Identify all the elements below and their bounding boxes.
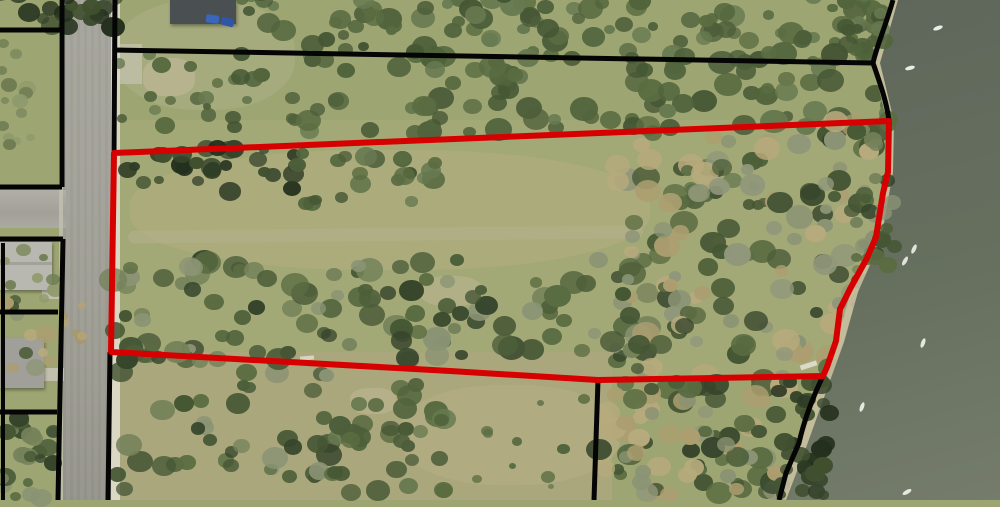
tree-canopy-blob (298, 197, 314, 210)
tree-canopy-blob (368, 398, 384, 412)
tree-canopy-blob (633, 411, 648, 424)
tree-canopy-blob (35, 454, 46, 464)
tree-canopy-blob (488, 55, 504, 68)
tree-canopy-blob (693, 425, 713, 442)
tree-canopy-blob (351, 266, 364, 277)
tree-canopy-blob (530, 16, 544, 28)
tree-canopy-blob (176, 161, 193, 176)
tree-canopy-blob (859, 143, 878, 159)
tree-canopy-blob (391, 331, 413, 349)
tree-canopy-blob (719, 427, 741, 445)
tree-canopy-blob (342, 338, 357, 351)
tree-canopy-blob (367, 295, 380, 306)
tree-canopy-blob (184, 259, 204, 276)
tree-canopy-blob (153, 269, 174, 287)
tree-canopy-blob (196, 420, 214, 435)
tree-canopy-blob (626, 0, 647, 16)
tree-canopy-blob (351, 397, 368, 411)
tree-canopy-blob (307, 435, 328, 453)
tree-canopy-blob (282, 300, 302, 317)
tree-canopy-blob (862, 0, 882, 17)
boat (919, 338, 926, 349)
tree-canopy-blob (684, 182, 698, 194)
tree-canopy-blob (175, 277, 189, 289)
tree-canopy-blob (282, 470, 297, 483)
tree-canopy-blob (434, 414, 449, 427)
tree-canopy-blob (401, 440, 415, 452)
tree-canopy-blob (302, 284, 317, 297)
tree-canopy-blob (425, 61, 445, 78)
tree-canopy-blob (663, 279, 679, 292)
tree-canopy-blob (820, 204, 832, 214)
tree-canopy-blob (739, 417, 763, 437)
tree-canopy-blob (632, 166, 659, 189)
tree-canopy-blob (468, 302, 491, 321)
tree-canopy-blob (47, 427, 59, 437)
tree-canopy-blob (799, 393, 815, 407)
parcel-upper-grass (130, 150, 650, 270)
tree-canopy-blob (366, 480, 390, 500)
tree-canopy-blob (689, 186, 707, 201)
tree-canopy-blob (838, 36, 858, 53)
tree-canopy-blob (787, 134, 811, 154)
tree-canopy-blob (880, 98, 897, 112)
tree-canopy-blob (10, 308, 24, 320)
tree-canopy-blob (234, 310, 251, 325)
tree-canopy-blob (625, 324, 652, 347)
tree-canopy-blob (704, 22, 721, 37)
tree-canopy-blob (249, 152, 267, 167)
tree-canopy-blob (253, 68, 269, 82)
tree-canopy-blob (498, 336, 526, 360)
tree-canopy-blob (523, 108, 549, 130)
tree-canopy-blob (805, 225, 826, 243)
tree-canopy-blob (806, 32, 819, 43)
tree-canopy-blob (498, 80, 519, 98)
tree-canopy-blob (465, 6, 486, 24)
tree-canopy-blob (877, 5, 887, 13)
tree-canopy-blob (758, 484, 776, 499)
tree-canopy-blob (850, 17, 867, 32)
tree-canopy-blob (520, 9, 542, 27)
tree-canopy-blob (672, 196, 689, 211)
tree-canopy-blob (184, 282, 201, 296)
tree-canopy-blob (383, 315, 409, 337)
tree-canopy-blob (749, 240, 776, 263)
tree-canopy-blob (627, 249, 640, 260)
tree-canopy-blob (610, 419, 637, 442)
tree-canopy-blob (843, 0, 866, 20)
tree-canopy-blob (607, 172, 629, 190)
tree-canopy-blob (613, 316, 639, 338)
tree-canopy-blob (392, 260, 408, 274)
tree-canopy-blob (876, 352, 891, 365)
tree-canopy-blob (338, 30, 349, 39)
water-body (786, 0, 1000, 500)
tree-canopy-blob (622, 274, 634, 284)
tree-canopy-blob (710, 166, 724, 178)
tree-canopy-blob (329, 416, 351, 435)
tree-canopy-blob (317, 327, 331, 339)
tree-canopy-blob (859, 329, 882, 349)
tree-canopy-blob (604, 25, 615, 35)
tree-canopy-blob (152, 57, 171, 73)
tree-canopy-blob (43, 355, 56, 366)
tree-canopy-blob (701, 437, 725, 457)
tree-canopy-blob (13, 447, 32, 463)
tree-canopy-blob (432, 111, 448, 125)
tree-canopy-blob (223, 459, 238, 472)
tree-canopy-blob (165, 96, 176, 105)
tree-canopy-blob (698, 258, 719, 275)
tree-canopy-blob (425, 119, 440, 132)
tree-canopy-blob (608, 354, 625, 369)
tree-canopy-blob (803, 101, 828, 122)
tree-canopy-blob (228, 74, 241, 85)
tree-canopy-blob (758, 198, 769, 208)
boats (858, 24, 943, 496)
tree-canopy-blob (480, 0, 504, 9)
tree-canopy-blob (686, 307, 706, 324)
tree-canopy-blob (679, 393, 697, 408)
tree-canopy-blob (775, 28, 787, 38)
tree-canopy-blob (638, 79, 664, 102)
tree-canopy-blob (340, 424, 364, 444)
tree-canopy-blob (778, 72, 794, 86)
tree-canopy-blob (119, 268, 140, 286)
tree-canopy-blob (767, 465, 787, 482)
tree-canopy-blob (30, 489, 51, 507)
tree-canopy-blob (284, 439, 303, 455)
tree-canopy-blob (258, 167, 271, 178)
tree-canopy-blob (317, 434, 340, 453)
tree-canopy-blob (481, 30, 501, 47)
tree-canopy-blob (572, 13, 585, 24)
tree-canopy-blob (359, 304, 385, 326)
tree-canopy-blob (685, 160, 701, 173)
tree-canopy-blob (329, 17, 342, 28)
tree-canopy-blob (166, 457, 184, 472)
tree-canopy-blob (498, 77, 516, 93)
tree-canopy-blob (328, 92, 349, 110)
tree-canopy-blob (865, 85, 885, 102)
tree-canopy-blob (398, 422, 414, 436)
tree-canopy-blob (800, 74, 821, 92)
tree-canopy-blob (848, 193, 871, 213)
tree-canopy-blob (874, 8, 887, 19)
tree-canopy-blob (450, 254, 464, 266)
tree-canopy-blob (149, 105, 161, 115)
tree-canopy-blob (18, 81, 36, 96)
tree-canopy-blob (231, 262, 246, 275)
tree-canopy-blob (26, 134, 35, 141)
tree-canopy-blob (37, 13, 49, 23)
tree-canopy-blob (557, 444, 569, 454)
tree-canopy-blob (711, 278, 734, 298)
tree-canopy-blob (356, 258, 384, 282)
tree-canopy-blob (736, 336, 754, 351)
tree-canopy-blob (615, 287, 631, 301)
tree-canopy-blob (449, 0, 472, 7)
tree-canopy-blob (767, 249, 791, 269)
tree-canopy-blob (436, 336, 450, 348)
tree-canopy-blob (813, 457, 833, 474)
tree-canopy-blob (300, 123, 318, 139)
tree-canopy-blob (810, 307, 823, 318)
tree-canopy-blob (408, 378, 425, 392)
tree-canopy-blob (7, 426, 18, 436)
tree-canopy-blob (863, 125, 879, 139)
tree-canopy-blob (720, 5, 745, 27)
tree-canopy-blob (155, 117, 175, 134)
tree-canopy-blob (624, 246, 638, 258)
tree-canopy-blob (3, 139, 16, 150)
tree-canopy-blob (403, 167, 417, 179)
tree-canopy-blob (380, 286, 396, 300)
tree-canopy-blob (635, 465, 651, 478)
tree-canopy-blob (0, 39, 9, 48)
tree-canopy-blob (394, 151, 410, 165)
tree-canopy-blob (0, 473, 9, 484)
tree-canopy-blob (364, 150, 385, 168)
tree-canopy-blob (739, 32, 759, 49)
tree-canopy-blob (751, 425, 767, 439)
tree-canopy-blob (185, 263, 210, 285)
sand-patch (143, 58, 195, 96)
tree-canopy-blob (675, 318, 694, 334)
tree-canopy-blob (417, 172, 432, 184)
tree-canopy-blob (444, 23, 462, 38)
tree-canopy-blob (1, 78, 17, 92)
tree-canopy-blob (605, 155, 630, 176)
tree-canopy-blob (797, 460, 816, 476)
tree-canopy-blob (665, 58, 684, 74)
tree-canopy-blob (611, 271, 624, 282)
tree-canopy-blob (206, 162, 219, 173)
parcel-ground (110, 120, 900, 380)
highlighted-parcel-boundary[interactable] (111, 121, 889, 380)
tree-canopy-blob (352, 167, 368, 180)
tree-canopy-blob (795, 484, 810, 497)
tree-canopy-blob (507, 68, 523, 81)
tree-canopy-blob (670, 211, 698, 235)
tree-canopy-blob (790, 447, 810, 464)
tree-canopy-blob (327, 466, 342, 479)
tree-canopy-blob (648, 22, 658, 31)
tree-canopy-blob (858, 185, 871, 196)
tree-canopy-blob (203, 103, 212, 110)
tree-canopy-blob (678, 467, 697, 483)
tree-canopy-blob (613, 295, 631, 311)
tree-canopy-blob (0, 66, 7, 75)
tree-canopy-blob (705, 130, 722, 144)
tree-canopy-blob (887, 240, 903, 253)
tree-canopy-blob (352, 415, 373, 433)
tree-canopy-blob (864, 132, 882, 148)
tree-canopy-blob (659, 193, 681, 212)
tree-canopy-blob (853, 139, 875, 158)
tree-canopy-blob (341, 484, 361, 501)
tree-canopy-blob (708, 51, 735, 74)
tree-canopy-blob (724, 243, 751, 266)
tree-canopy-blob (522, 302, 544, 320)
tree-canopy-blob (841, 24, 855, 36)
tree-canopy-blob (289, 158, 306, 173)
tree-canopy-blob (544, 285, 571, 308)
tree-canopy-blob (709, 178, 728, 194)
tree-canopy-blob (644, 383, 659, 396)
tree-canopy-blob (632, 27, 651, 43)
tree-canopy-blob (520, 339, 544, 359)
tree-canopy-blob (833, 162, 847, 174)
tree-canopy-blob (436, 484, 453, 498)
tree-canopy-blob (627, 445, 646, 461)
tree-canopy-blob (134, 308, 150, 321)
tree-canopy-blob (619, 451, 634, 463)
tree-canopy-blob (654, 235, 680, 257)
tree-canopy-blob (811, 473, 828, 487)
tree-canopy-blob (625, 72, 649, 92)
boat (905, 65, 916, 71)
tree-canopy-blob (851, 253, 862, 262)
tree-canopy-blob (23, 478, 33, 487)
tree-canopy-blob (680, 428, 700, 445)
tree-canopy-blob (237, 380, 250, 391)
tree-canopy-blob (412, 36, 437, 57)
tree-canopy-blob (776, 490, 786, 499)
shoreline-vegetation (0, 0, 1000, 500)
tree-canopy-blob (296, 110, 321, 131)
tree-canopy-blob (543, 49, 559, 62)
tree-canopy-blob (774, 477, 790, 490)
tree-canopy-blob (219, 182, 241, 200)
tree-canopy-blob (255, 0, 273, 8)
tree-canopy-blob (874, 33, 892, 49)
cross-street (0, 190, 66, 228)
tree-canopy-blob (680, 306, 697, 321)
shoreline-beach (786, 0, 898, 500)
parcel-lines-layer (0, 0, 1000, 500)
tree-canopy-blob (635, 399, 660, 421)
tree-canopy-blob (802, 453, 819, 467)
tree-canopy-blob (658, 82, 680, 101)
tree-canopy-blob (774, 433, 795, 451)
tree-canopy-blob (393, 398, 417, 419)
tree-canopy-blob (204, 294, 223, 310)
tree-canopy-blob (9, 410, 29, 427)
tree-canopy-blob (412, 96, 436, 116)
tree-canopy-blob (688, 292, 702, 304)
tree-canopy-blob (775, 82, 798, 102)
tree-canopy-blob (8, 0, 29, 3)
tree-canopy-blob (829, 266, 849, 283)
tree-canopy-blob (800, 183, 821, 201)
tree-canopy-blob (763, 480, 787, 500)
tree-canopy-blob (827, 4, 837, 13)
tree-canopy-blob (465, 290, 481, 304)
tree-canopy-blob (556, 314, 571, 327)
tree-canopy-blob (599, 417, 626, 440)
tree-canopy-blob (857, 297, 870, 308)
tree-canopy-blob (425, 405, 451, 427)
tree-canopy-blob (859, 135, 884, 157)
tree-canopy-blob (179, 257, 201, 276)
tree-canopy-blob (380, 425, 401, 443)
tree-canopy-blob (869, 173, 882, 184)
tree-canopy-blob (495, 0, 514, 3)
tree-canopy-blob (699, 15, 714, 27)
tree-canopy-blob (265, 168, 281, 182)
tree-canopy-blob (600, 111, 621, 129)
tree-canopy-blob (0, 301, 10, 315)
tree-canopy-blob (405, 310, 418, 321)
tree-canopy-blob (678, 154, 704, 176)
tree-canopy-blob (855, 21, 868, 32)
tree-canopy-blob (718, 439, 744, 461)
tree-canopy-blob (612, 464, 624, 474)
tree-canopy-blob (629, 0, 651, 10)
tree-canopy-blob (483, 429, 494, 438)
tree-canopy-blob (658, 282, 671, 293)
tree-canopy-blob (387, 57, 411, 77)
tree-canopy-blob (800, 408, 815, 421)
tree-canopy-blob (800, 464, 813, 475)
tree-canopy-blob (793, 33, 811, 48)
tree-canopy-blob (644, 96, 665, 114)
tree-canopy-blob (698, 426, 712, 438)
tree-canopy-blob (754, 137, 781, 160)
tree-canopy-blob (731, 334, 756, 356)
tree-canopy-blob (9, 295, 21, 305)
tree-canopy-blob (0, 297, 14, 309)
tree-canopy-blob (489, 63, 517, 86)
tree-canopy-blob (203, 163, 222, 179)
tree-canopy-blob (264, 464, 276, 475)
tree-canopy-blob (364, 9, 384, 26)
tree-canopy-blob (853, 341, 874, 359)
tree-canopy-blob (530, 277, 543, 288)
tree-canopy-blob (811, 440, 833, 458)
boat (902, 488, 913, 496)
tree-canopy-blob (790, 335, 807, 349)
tree-canopy-blob (797, 460, 812, 473)
tree-canopy-blob (421, 162, 441, 179)
tree-canopy-blob (406, 45, 427, 62)
tree-canopy-blob (570, 97, 598, 120)
tree-canopy-blob (488, 95, 507, 111)
tree-canopy-blob (787, 233, 802, 246)
tree-canopy-blob (857, 124, 870, 135)
tree-canopy-blob (152, 456, 176, 476)
tree-canopy-blob (353, 0, 374, 9)
tree-canopy-blob (850, 293, 871, 311)
tree-canopy-blob (775, 265, 789, 277)
tree-canopy-blob (410, 325, 427, 339)
tree-canopy-blob (420, 46, 447, 69)
tree-canopy-blob (394, 167, 415, 185)
tree-canopy-blob (405, 102, 419, 114)
tree-canopy-blob (617, 444, 643, 466)
tree-canopy-blob (174, 395, 194, 412)
tree-canopy-blob (714, 73, 742, 97)
tree-canopy-blob (654, 222, 672, 237)
tree-canopy-blob (582, 27, 605, 47)
tree-canopy-blob (257, 270, 277, 287)
tree-canopy-blob (706, 151, 729, 171)
tree-canopy-blob (243, 0, 259, 2)
tree-canopy-blob (869, 138, 883, 150)
tree-canopy-blob (691, 162, 719, 185)
